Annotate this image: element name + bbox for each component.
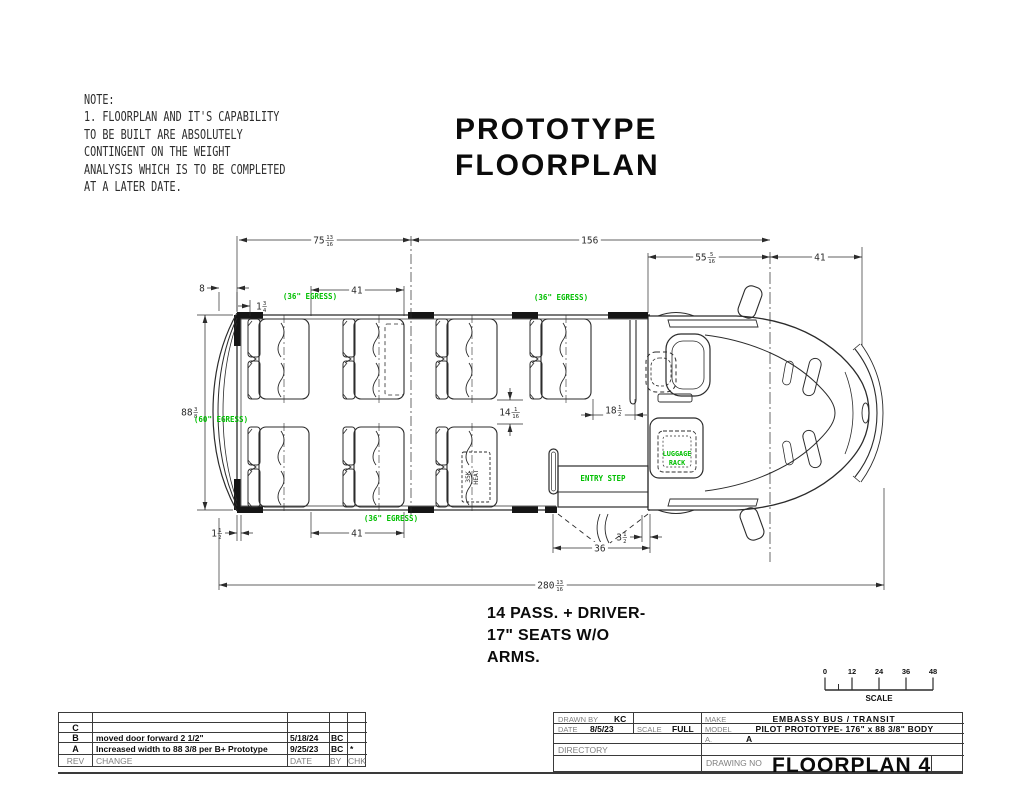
- rev-row-by: BC: [331, 744, 343, 754]
- dimension-text: 8: [199, 284, 205, 295]
- wall-segment: [237, 507, 263, 514]
- dimension-text: 41: [351, 286, 363, 297]
- rev-letter-value: A: [746, 734, 752, 744]
- make-value: EMBASSY BUS / TRANSIT: [729, 714, 939, 724]
- dimension-text: 41: [814, 253, 826, 264]
- egress-label: (36" EGRESS): [283, 292, 337, 301]
- mirror: [738, 506, 766, 542]
- date-value: 8/5/23: [590, 724, 614, 734]
- rev-row-letter: A: [59, 744, 92, 754]
- drawn-by-value: KC: [614, 714, 626, 724]
- scale-label: SCALE: [637, 725, 662, 734]
- drawn-by-label: DRAWN BY: [558, 715, 598, 724]
- dimension-text: 3: [616, 533, 622, 544]
- svg-text:16: 16: [512, 414, 519, 420]
- wall-segment: [545, 507, 557, 514]
- wall-segment: [608, 312, 648, 319]
- revision-table: C B moved door forward 2 1/2" 5/18/24 BC…: [58, 712, 366, 767]
- title-block: DRAWN BY KC MAKE EMBASSY BUS / TRANSIT D…: [553, 712, 963, 772]
- dimension-text: 1: [256, 302, 262, 313]
- caption-line: 14 PASS. + DRIVER-: [487, 603, 646, 625]
- seating-caption: 14 PASS. + DRIVER- 17" SEATS W/O ARMS.: [487, 603, 646, 669]
- dimension-text: 75: [313, 236, 324, 247]
- model-label: MODEL: [705, 725, 732, 734]
- svg-text:HEAT: HEAT: [473, 469, 480, 484]
- luggage-rack-label: RACK: [669, 459, 686, 467]
- svg-text:2: 2: [618, 412, 621, 418]
- heater-text: 35K: [0, 0, 6, 2]
- dimension-text: 36: [594, 544, 606, 555]
- drawing-no-value: FLOORPLAN 4: [772, 754, 931, 778]
- rev-header: REV: [59, 756, 92, 766]
- dimension-text: 280: [537, 581, 554, 592]
- scale-tick-label: 36: [902, 667, 910, 676]
- rev-row-date: 5/18/24: [290, 733, 318, 743]
- dimension-text: 14: [499, 408, 511, 419]
- scale-value: FULL: [672, 724, 694, 734]
- rev-row-change: moved door forward 2 1/2": [96, 733, 203, 743]
- scale-tick-label: 0: [823, 667, 827, 676]
- directory-label: DIRECTORY: [558, 745, 608, 755]
- egress-label: (36" EGRESS): [364, 514, 418, 523]
- wall-segment: [512, 312, 538, 319]
- grab-rail: [549, 449, 558, 494]
- rev-row-letter: C: [59, 723, 92, 733]
- date-label: DATE: [558, 725, 577, 734]
- caption-line: 17" SEATS W/O: [487, 625, 646, 647]
- wall-segment: [512, 507, 538, 514]
- svg-text:16: 16: [556, 587, 563, 593]
- scale-label: SCALE: [865, 694, 893, 703]
- svg-text:16: 16: [326, 242, 333, 248]
- scale-tick-label: 24: [875, 667, 884, 676]
- sheet-border-line: [58, 772, 963, 774]
- floorplan-drawing: 35KHEAT35KLUGGAGERACKENTRY STEP751316156…: [0, 0, 1024, 791]
- luggage-rack-label: LUGGAGE: [663, 450, 692, 458]
- scale-tick-label: 48: [929, 667, 937, 676]
- egress-label: (36" EGRESS): [534, 293, 588, 302]
- dimension-text: 1: [211, 529, 217, 540]
- chk-header: CHK: [348, 756, 366, 766]
- rev-letter-label: A.: [705, 735, 712, 744]
- rev-row-chk: *: [350, 744, 353, 754]
- change-header: CHANGE: [96, 756, 132, 766]
- by-header: BY: [330, 756, 341, 766]
- wall-segment: [234, 315, 241, 346]
- wall-segment: [408, 507, 434, 514]
- mirror: [736, 284, 764, 320]
- date-header: DATE: [290, 756, 312, 766]
- wall-segment: [408, 312, 434, 319]
- svg-text:4: 4: [263, 308, 267, 314]
- entry-step: [558, 466, 648, 507]
- heater-label: 35KHEAT: [465, 469, 480, 484]
- drawing-sheet: NOTE: 1. FLOORPLAN AND IT'S CAPABILITY T…: [0, 0, 1024, 791]
- make-label: MAKE: [705, 715, 726, 724]
- dimension-text: 55: [695, 253, 706, 264]
- front-emblem: [862, 403, 869, 423]
- dimension-text: 41: [351, 529, 363, 540]
- dimension-text: 88: [181, 408, 193, 419]
- rev-row-change: Increased width to 88 3/8 per B+ Prototy…: [96, 744, 268, 754]
- driver-seat: [666, 334, 710, 396]
- drawing-no-label: DRAWING NO: [706, 758, 762, 768]
- model-value: PILOT PROTOTYPE- 176" x 88 3/8" BODY: [732, 724, 957, 734]
- rev-row-by: BC: [331, 733, 343, 743]
- dimension-text: 156: [581, 236, 598, 247]
- scale-tick-label: 12: [848, 667, 856, 676]
- svg-text:2: 2: [218, 535, 221, 541]
- svg-text:16: 16: [708, 259, 715, 265]
- caption-line: ARMS.: [487, 647, 646, 669]
- dimension-text: 18: [605, 406, 617, 417]
- headlight: [802, 357, 823, 397]
- svg-text:35K: 35K: [465, 471, 472, 483]
- entry-step-label: ENTRY STEP: [580, 474, 626, 483]
- svg-text:2: 2: [623, 539, 626, 545]
- rev-row-letter: B: [59, 733, 92, 743]
- rev-row-date: 9/25/23: [290, 744, 318, 754]
- egress-label: (60" EGRESS): [194, 415, 248, 424]
- headlight: [802, 429, 823, 469]
